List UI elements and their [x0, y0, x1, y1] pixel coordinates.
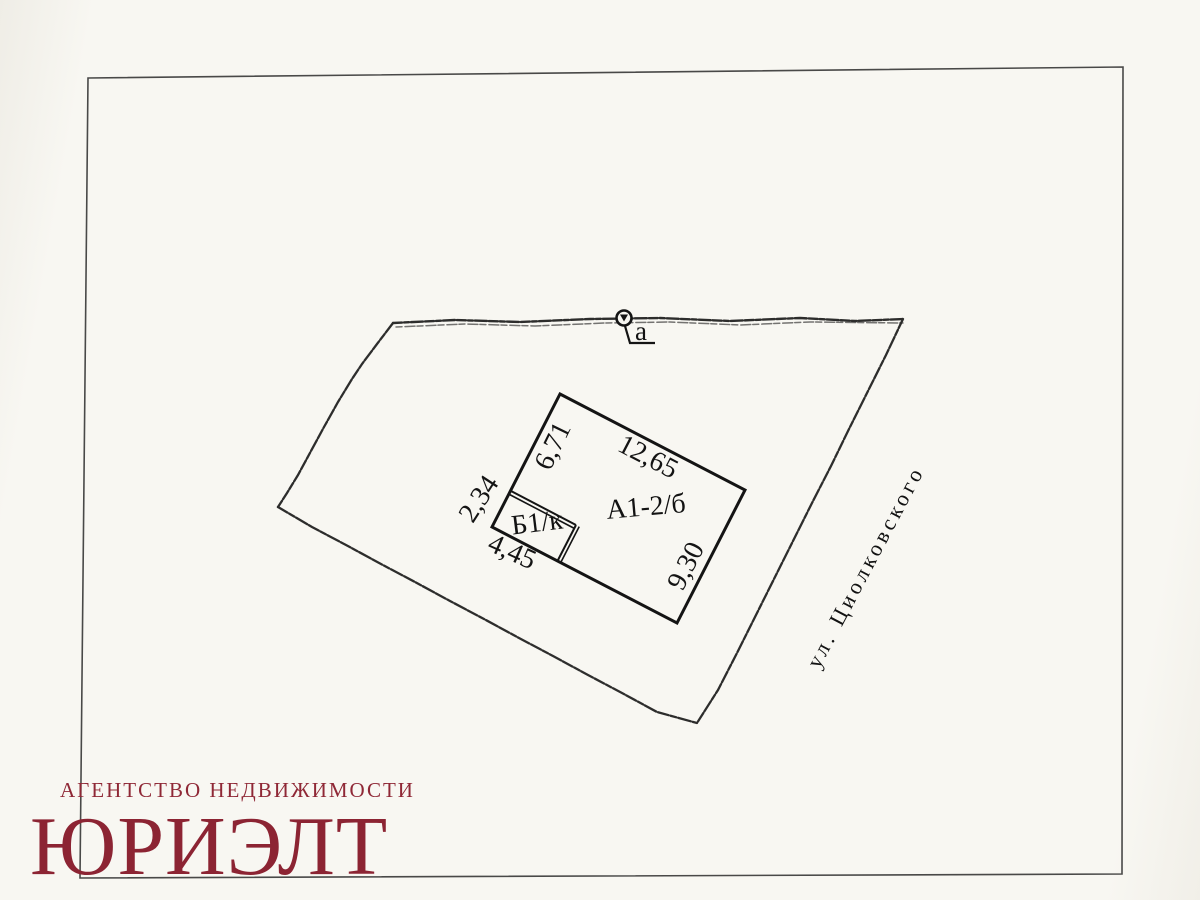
plot-boundary-west	[278, 323, 393, 507]
main-building-label: А1-2/б	[605, 488, 687, 526]
scanned-site-plan-page: 6,71 12,65 9,30 2,34 4,45 А1-2/б Б1/к а …	[0, 0, 1200, 900]
plot-boundary-southwest	[278, 507, 697, 723]
agency-watermark: АГЕНТСТВО НЕДВИЖИМОСТИ ЮРИЭЛТ	[30, 779, 415, 885]
dimension-ne-edge: 12,65	[613, 429, 683, 486]
scan-frame-border	[80, 67, 1123, 878]
annex-label: Б1/к	[510, 504, 565, 541]
watermark-agency-line: АГЕНТСТВО НЕДВИЖИМОСТИ	[60, 779, 415, 802]
dimension-se-edge: 9,30	[661, 537, 711, 595]
boundary-marker: а	[617, 311, 656, 347]
watermark-brand-name: ЮРИЭЛТ	[30, 808, 415, 885]
street-name-label: ул. Циолковского	[801, 461, 929, 672]
marker-label: а	[635, 316, 647, 346]
plot-boundary-north-shadow	[396, 322, 903, 327]
site-plan-drawing: 6,71 12,65 9,30 2,34 4,45 А1-2/б Б1/к а …	[0, 0, 1200, 900]
dimension-nw-edge: 6,71	[528, 417, 577, 475]
